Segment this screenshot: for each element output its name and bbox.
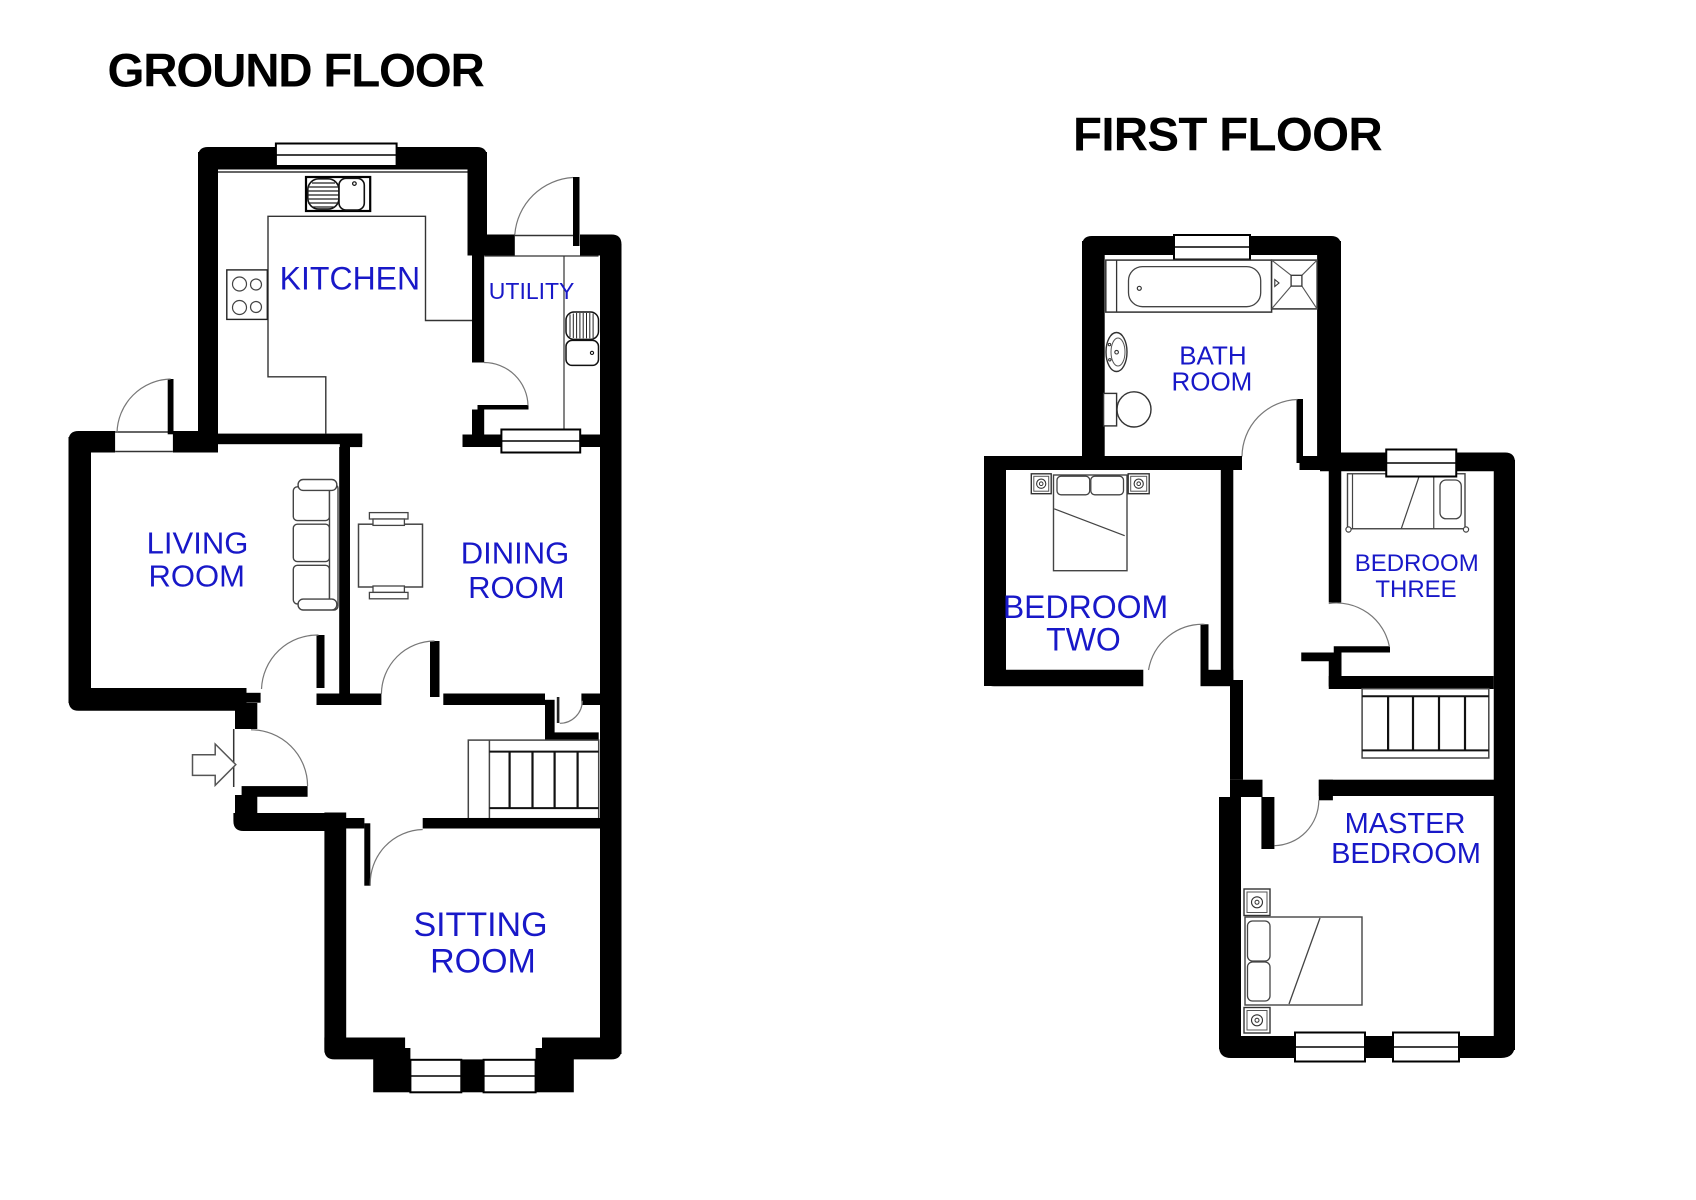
svg-text:ROOM: ROOM <box>148 559 244 594</box>
svg-text:MASTER: MASTER <box>1345 808 1466 840</box>
svg-text:BEDROOM: BEDROOM <box>1331 838 1481 870</box>
svg-text:DINING: DINING <box>461 536 570 571</box>
svg-text:UTILITY: UTILITY <box>489 278 575 304</box>
svg-text:THREE: THREE <box>1375 576 1456 603</box>
svg-text:ROOM: ROOM <box>430 943 536 981</box>
svg-text:BEDROOM: BEDROOM <box>1355 550 1479 577</box>
svg-text:SITTING: SITTING <box>413 906 547 944</box>
svg-text:ROOM: ROOM <box>468 570 564 605</box>
svg-text:BEDROOM: BEDROOM <box>1003 589 1168 625</box>
svg-text:KITCHEN: KITCHEN <box>280 261 420 297</box>
svg-text:GROUND FLOOR: GROUND FLOOR <box>108 45 485 98</box>
svg-text:FIRST FLOOR: FIRST FLOOR <box>1073 109 1382 162</box>
svg-text:LIVING: LIVING <box>147 526 249 561</box>
svg-text:TWO: TWO <box>1046 622 1121 658</box>
svg-text:ROOM: ROOM <box>1171 366 1252 396</box>
